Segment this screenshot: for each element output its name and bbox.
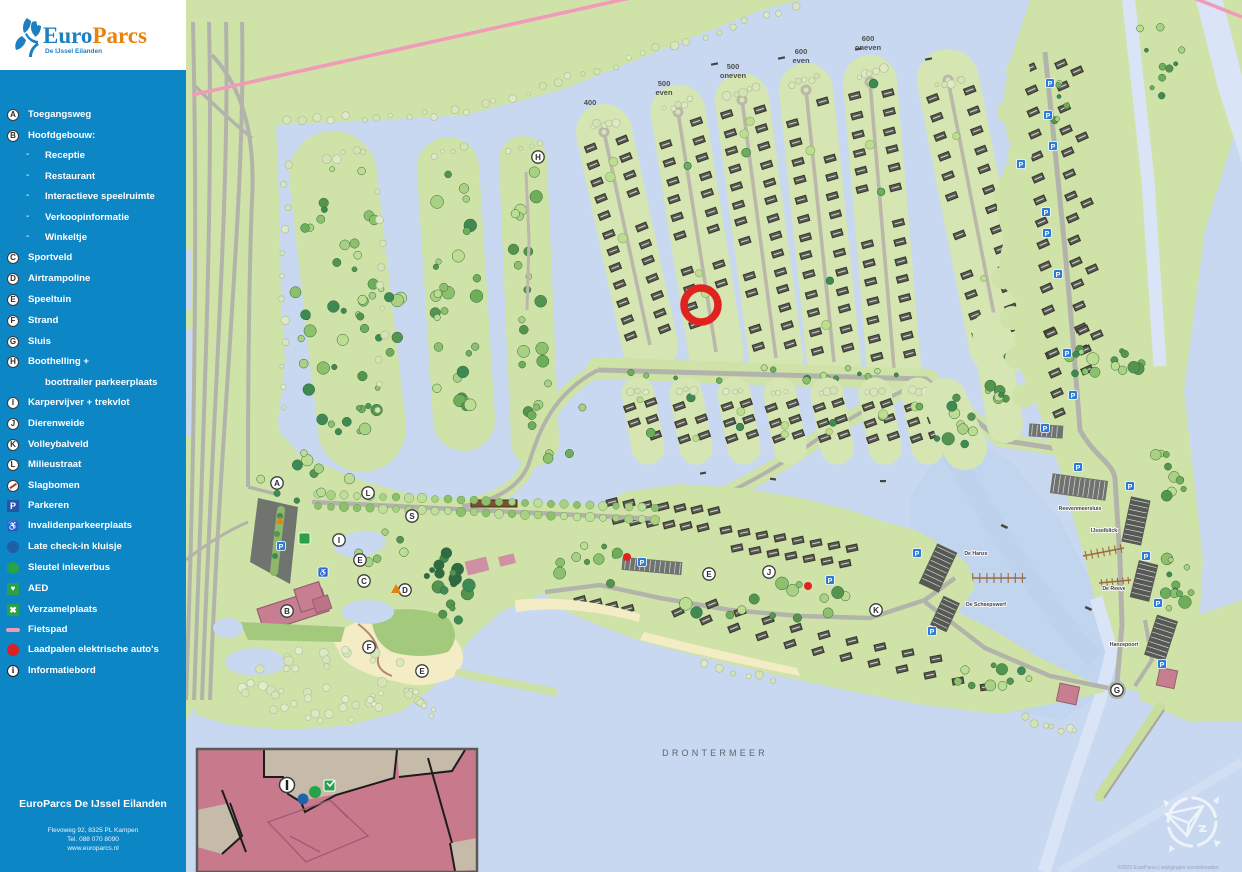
svg-text:P: P [1044, 210, 1049, 217]
svg-text:500: 500 [658, 79, 671, 88]
svg-text:oneven: oneven [720, 71, 747, 80]
svg-text:P: P [279, 544, 284, 551]
svg-text:600: 600 [862, 34, 875, 43]
svg-text:P: P [915, 551, 920, 558]
svg-text:P: P [1076, 465, 1081, 472]
svg-text:De Reeve: De Reeve [1102, 586, 1125, 592]
svg-text:even: even [655, 88, 673, 97]
svg-text:500: 500 [727, 62, 740, 71]
svg-text:P: P [1046, 113, 1051, 120]
svg-text:H: H [535, 153, 541, 162]
svg-text:P: P [1019, 162, 1024, 169]
svg-text:even: even [792, 56, 810, 65]
svg-text:P: P [1056, 272, 1061, 279]
svg-text:G: G [1114, 686, 1120, 695]
svg-text:P: P [1128, 484, 1133, 491]
svg-text:P: P [828, 578, 833, 585]
svg-text:©2023 EuroParcs | wijzigingen: ©2023 EuroParcs | wijzigingen voorbehoud… [1117, 864, 1219, 871]
svg-text:P: P [1051, 144, 1056, 151]
svg-text:P: P [1071, 393, 1076, 400]
svg-text:P: P [1160, 662, 1165, 669]
svg-text:♿: ♿ [318, 567, 328, 577]
svg-text:P: P [1144, 554, 1149, 561]
svg-text:IJsselblick: IJsselblick [1091, 528, 1117, 534]
svg-text:P: P [1043, 426, 1048, 433]
svg-text:400: 400 [584, 98, 597, 107]
svg-text:F: F [367, 643, 372, 652]
svg-text:Hanzepoort: Hanzepoort [1110, 642, 1139, 648]
svg-text:D: D [402, 586, 408, 595]
svg-text:I: I [338, 536, 340, 545]
svg-text:L: L [366, 489, 371, 498]
svg-text:E: E [419, 667, 425, 676]
svg-text:P: P [1045, 231, 1050, 238]
svg-text:A: A [274, 479, 280, 488]
svg-text:Reevenmeersluis: Reevenmeersluis [1059, 506, 1102, 512]
svg-text:K: K [873, 606, 879, 615]
svg-text:P: P [640, 560, 645, 567]
svg-text:P: P [1065, 351, 1070, 358]
svg-text:J: J [767, 568, 771, 577]
svg-text:oneven: oneven [855, 43, 882, 52]
svg-text:De Scheepswerf: De Scheepswerf [966, 602, 1006, 608]
svg-text:De Hanze: De Hanze [964, 551, 987, 557]
svg-text:EuroParcs: EuroParcs [43, 23, 147, 48]
svg-text:P: P [1156, 601, 1161, 608]
svg-text:P: P [1048, 81, 1053, 88]
svg-text:De IJssel Eilanden: De IJssel Eilanden [45, 48, 102, 55]
svg-text:E: E [706, 570, 712, 579]
svg-text:600: 600 [795, 47, 808, 56]
svg-text:P: P [930, 629, 935, 636]
svg-text:C: C [361, 577, 367, 586]
svg-text:S: S [409, 512, 415, 521]
svg-text:DRONTERMEER: DRONTERMEER [662, 748, 768, 758]
svg-text:B: B [284, 607, 290, 616]
svg-text:E: E [357, 556, 363, 565]
